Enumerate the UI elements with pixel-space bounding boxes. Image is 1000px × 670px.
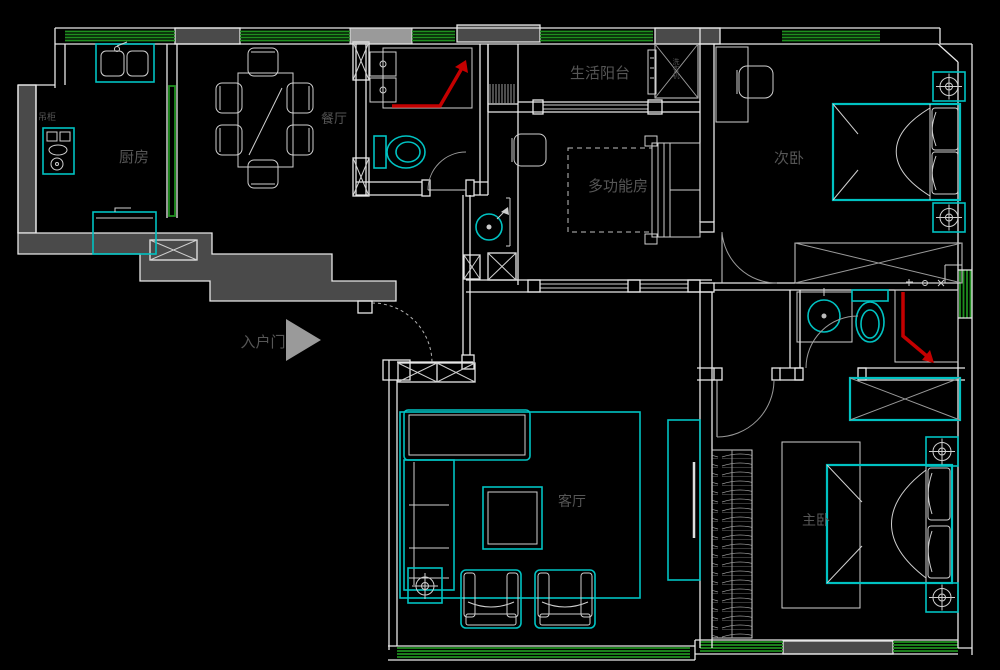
hanger-wardrobe-symbol bbox=[712, 450, 752, 638]
label-multifunction: 多功能房 bbox=[588, 177, 648, 195]
label-dining: 餐厅 bbox=[321, 111, 347, 127]
label-entry: 入户门 bbox=[240, 333, 285, 351]
floor-plan-canvas: 厨房 餐厅 生活阳台 多功能房 次卧 客厅 主卧 入户门 吊柜 洗衣机 bbox=[0, 0, 1000, 670]
label-bedroom2: 次卧 bbox=[774, 149, 804, 167]
label-balcony: 生活阳台 bbox=[570, 64, 630, 82]
label-hanging-cabinet: 吊柜 bbox=[38, 111, 56, 123]
label-living: 客厅 bbox=[558, 493, 586, 510]
label-washer: 洗衣机 bbox=[672, 57, 680, 80]
label-master: 主卧 bbox=[802, 513, 830, 529]
label-kitchen: 厨房 bbox=[119, 148, 149, 166]
